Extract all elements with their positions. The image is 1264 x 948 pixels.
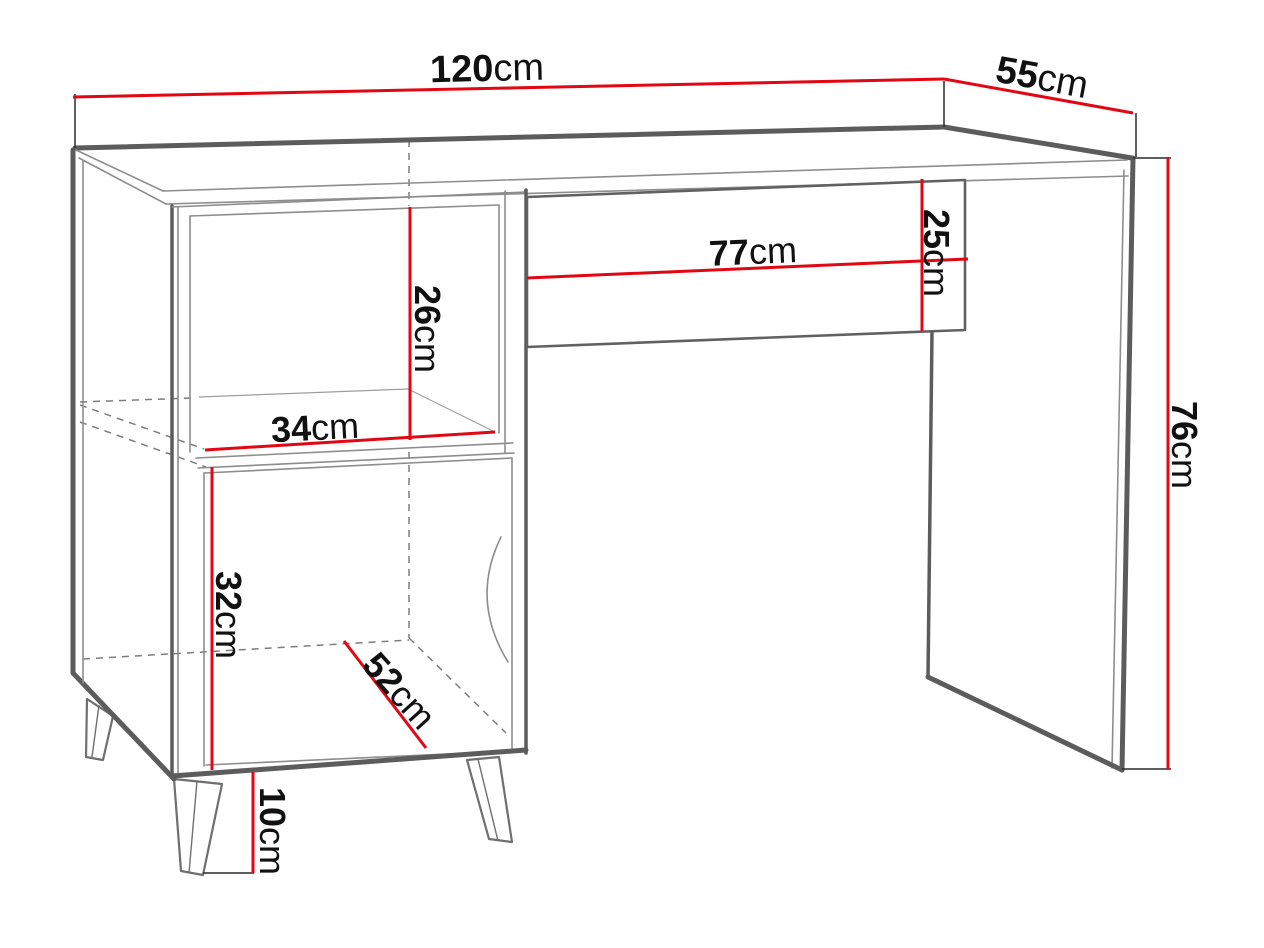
front-left-leg — [174, 779, 222, 875]
desk-dimension-diagram: 120cm 55cm 77cm 25cm 26cm 34cm 32cm 52cm… — [0, 0, 1264, 948]
desktop-left-depth-edge — [76, 150, 163, 191]
dimension-label-shelf-height: 26cm — [407, 285, 448, 373]
legs — [86, 699, 512, 875]
hidden-edge-divider — [80, 422, 206, 467]
diagram-canvas: 120cm 55cm 77cm 25cm 26cm 34cm 32cm 52cm… — [0, 0, 1264, 948]
dimension-label-cabinet-height: 32cm — [208, 571, 249, 659]
right-panel-back-edge — [1122, 158, 1133, 770]
shelf-board-back-edge — [199, 389, 408, 397]
desktop-front-edge — [163, 160, 1127, 191]
right-panel-front-edge — [928, 332, 932, 677]
dimension-label-shelf-width: 34cm — [270, 405, 360, 451]
dimension-label-width: 120cm — [430, 47, 545, 92]
desktop — [75, 127, 1132, 204]
desktop-back-edge — [75, 127, 944, 148]
door-handle-groove — [487, 537, 508, 662]
right-panel-bottom-edge — [928, 677, 1122, 770]
dimension-label-drawer-height: 25cm — [916, 209, 957, 297]
hidden-edge-shelf-back — [80, 398, 192, 402]
dimension-label-drawer-width: 77cm — [708, 229, 798, 274]
pedestal-cabinet — [172, 190, 526, 776]
left-side-panel — [73, 150, 174, 779]
dimension-label-depth: 55cm — [992, 49, 1091, 107]
dimension-label-leg-height: 10cm — [252, 787, 293, 875]
desktop-right-depth-edge — [944, 127, 1132, 158]
pedestal-top-edge — [172, 192, 526, 207]
shelf-opening-top-edge — [190, 205, 499, 216]
desktop-left-bottom-edge — [79, 158, 166, 204]
shelf-board-depth-edge — [408, 389, 495, 432]
hidden-edge-shelf-front — [80, 405, 204, 449]
dimension-label-total-height: 76cm — [1164, 401, 1205, 489]
front-right-leg — [467, 757, 512, 842]
